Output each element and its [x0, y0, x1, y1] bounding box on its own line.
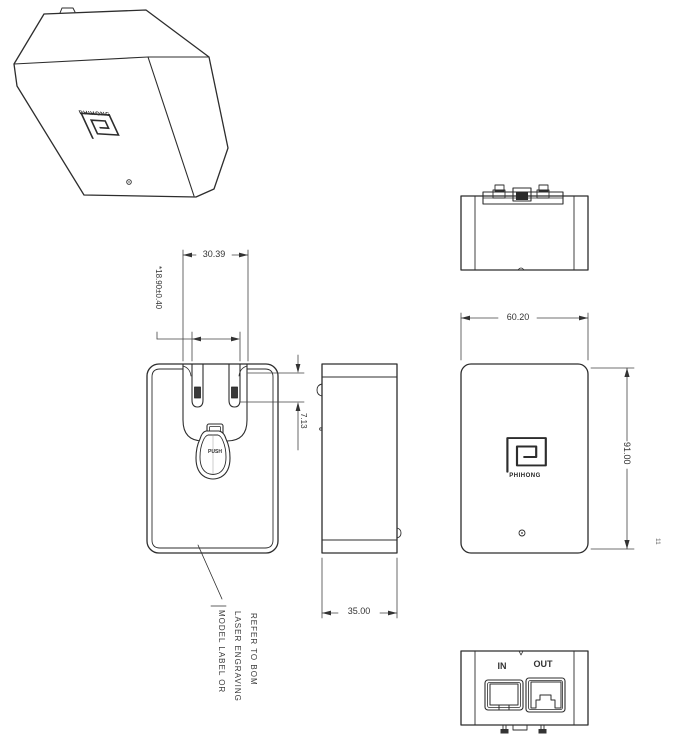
isometric-view: [14, 8, 228, 197]
drawing-sheet: PHIHONG 30.39 *18.90±0.40 7.13 PUSH MODE…: [0, 0, 689, 753]
rj45-port-out[interactable]: [526, 678, 565, 712]
dim-width: 60.20: [498, 313, 538, 322]
dim-blade-offset: 7.13: [299, 413, 307, 429]
front-view: [147, 364, 278, 606]
port-in-label: IN: [494, 662, 510, 671]
dim-blade-span: *18.90±0.40: [154, 266, 162, 309]
push-button[interactable]: [196, 431, 230, 479]
push-button-label: PUSH: [203, 450, 227, 455]
back-logo-text: PHIHONG: [503, 473, 547, 479]
rj45-port-in[interactable]: [485, 680, 523, 710]
note-line-3: REFER TO BOM: [249, 613, 257, 686]
dim-height: 91.00: [622, 442, 631, 465]
ac-blade-right: [229, 364, 240, 407]
dim-recess-width: 30.39: [192, 250, 236, 259]
edge-mark: 11: [654, 538, 661, 545]
ac-blade-left: [192, 364, 203, 407]
side-view: [317, 364, 401, 618]
top-view: [461, 185, 588, 270]
front-dimensions: [157, 250, 304, 450]
bottom-view: [461, 651, 588, 734]
note-line-2: LASER ENGRAVING: [233, 611, 241, 702]
dim-depth: 35.00: [337, 607, 381, 616]
note-line-1: MODEL LABEL OR: [217, 610, 225, 693]
port-out-label: OUT: [529, 660, 557, 669]
phihong-logo-mark: [507, 438, 545, 472]
back-view: [461, 313, 634, 553]
